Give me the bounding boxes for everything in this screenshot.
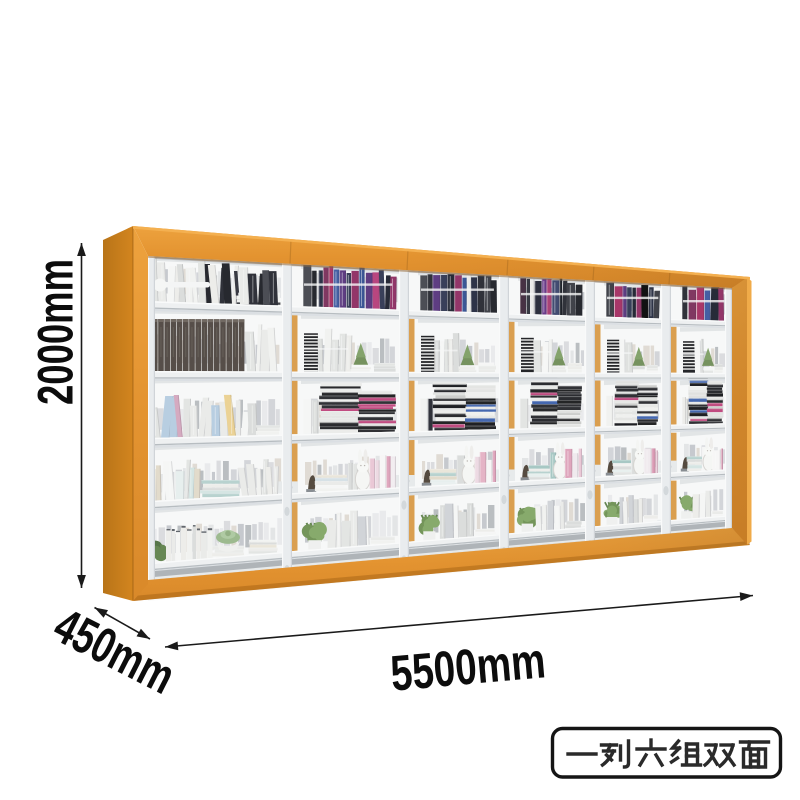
svg-text:2000mm: 2000mm [28, 259, 84, 405]
